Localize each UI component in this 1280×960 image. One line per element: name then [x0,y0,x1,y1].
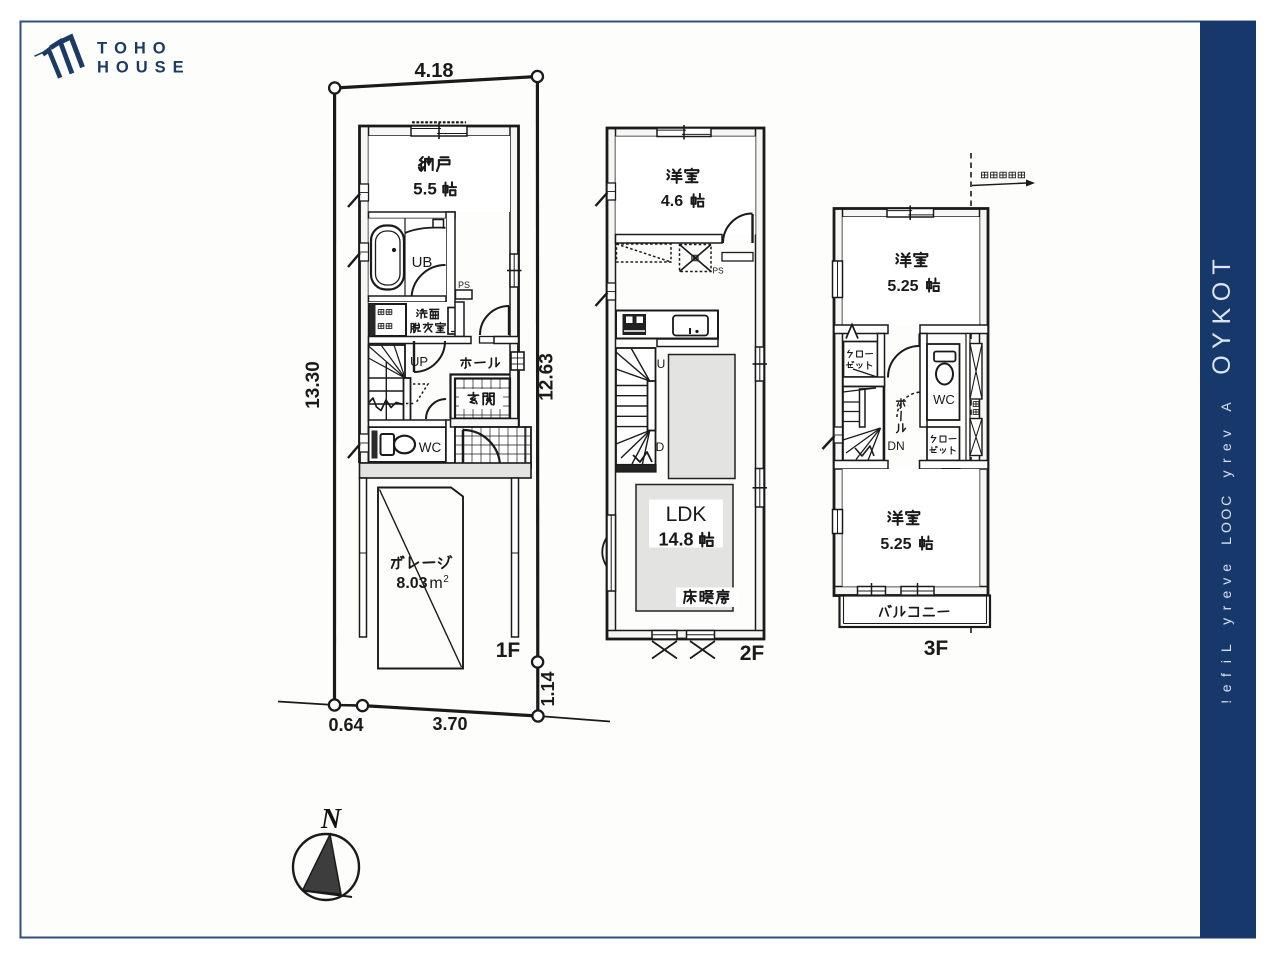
svg-text:0.64: 0.64 [328,715,363,735]
svg-text:!: ! [1218,700,1234,704]
svg-text:O: O [1208,355,1236,374]
svg-text:3F: 3F [924,637,949,660]
svg-text:D: D [656,440,665,454]
svg-text:3.70: 3.70 [432,714,467,734]
svg-text:N: N [320,804,343,835]
svg-text:PS: PS [712,266,724,276]
svg-text:A: A [1218,402,1234,412]
svg-text:i: i [1218,660,1234,663]
svg-text:f: f [1218,673,1234,677]
svg-text:1.14: 1.14 [538,671,558,706]
svg-text:r: r [1218,458,1234,463]
svg-text:L: L [1218,644,1234,652]
svg-text:8.03: 8.03 [396,575,427,592]
svg-text:v: v [1218,578,1234,585]
svg-text:5.25: 5.25 [887,278,918,295]
svg-text:e: e [1218,443,1234,451]
svg-text:r: r [1218,605,1234,610]
svg-text:T O H O: T O H O [97,40,167,58]
svg-text:m: m [429,575,442,592]
svg-text:WC: WC [933,392,955,407]
svg-text:DN: DN [887,439,904,453]
svg-text:WC: WC [419,440,442,455]
svg-text:y: y [1218,618,1234,625]
svg-text:O: O [1218,509,1234,520]
svg-text:K: K [1208,307,1236,324]
svg-text:UP: UP [410,354,428,369]
svg-text:v: v [1218,430,1234,437]
svg-text:e: e [1218,564,1234,572]
svg-text:5.5: 5.5 [413,180,437,199]
svg-text:e: e [1218,590,1234,598]
svg-text:LDK: LDK [666,503,707,526]
svg-text:2F: 2F [740,642,765,665]
svg-text:14.8: 14.8 [658,530,693,550]
svg-text:2: 2 [443,574,449,585]
svg-text:T: T [1208,259,1236,274]
svg-text:O: O [1208,282,1236,301]
svg-text:12.63: 12.63 [537,353,558,401]
svg-text:5.25: 5.25 [880,536,911,553]
svg-text:C: C [1218,496,1234,506]
svg-text:13.30: 13.30 [303,361,324,409]
svg-text:e: e [1218,684,1234,692]
svg-text:1F: 1F [496,639,521,662]
svg-text:L: L [1218,537,1234,545]
svg-text:O: O [1218,522,1234,533]
svg-text:4.6: 4.6 [661,193,683,210]
svg-text:PS: PS [458,280,470,290]
svg-text:4.18: 4.18 [415,60,454,82]
svg-text:U: U [657,357,666,371]
svg-text:H O U S E: H O U S E [97,59,185,77]
svg-text:Y: Y [1208,332,1236,349]
svg-text:y: y [1218,471,1234,478]
